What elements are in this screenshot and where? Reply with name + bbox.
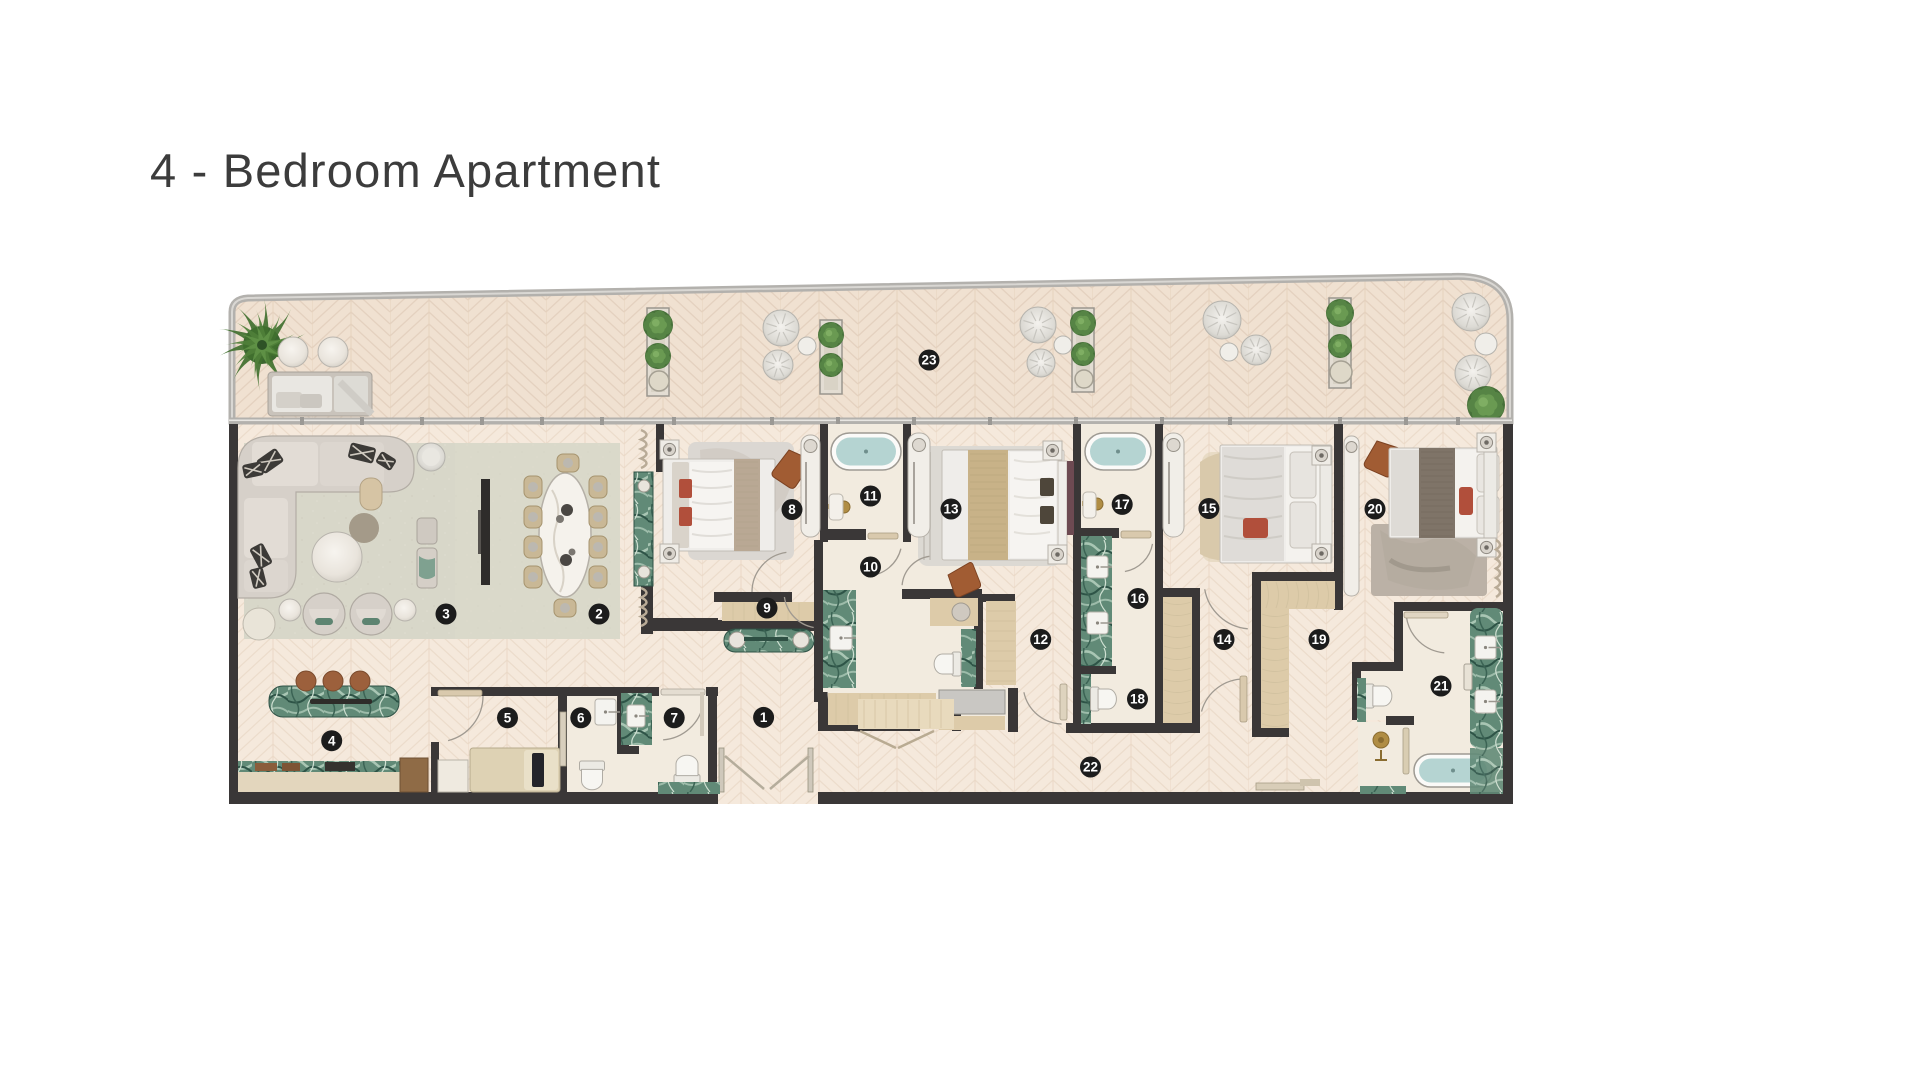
- svg-text:4: 4: [328, 733, 336, 748]
- svg-text:16: 16: [1130, 591, 1146, 606]
- svg-text:17: 17: [1115, 497, 1130, 512]
- svg-text:23: 23: [921, 353, 937, 368]
- svg-text:7: 7: [670, 710, 678, 725]
- svg-text:19: 19: [1311, 632, 1326, 647]
- svg-text:10: 10: [863, 560, 878, 575]
- svg-text:15: 15: [1201, 501, 1217, 516]
- svg-text:1: 1: [760, 710, 768, 725]
- svg-text:6: 6: [577, 710, 585, 725]
- svg-text:18: 18: [1130, 692, 1146, 707]
- svg-text:2: 2: [595, 607, 603, 622]
- svg-text:21: 21: [1433, 679, 1449, 694]
- svg-text:13: 13: [943, 502, 959, 517]
- svg-text:4 - Bedroom Apartment: 4 - Bedroom Apartment: [150, 144, 661, 197]
- svg-text:14: 14: [1216, 632, 1232, 647]
- svg-text:9: 9: [763, 601, 771, 616]
- svg-text:5: 5: [504, 710, 512, 725]
- svg-text:20: 20: [1367, 502, 1382, 517]
- svg-text:8: 8: [788, 502, 796, 517]
- svg-text:12: 12: [1033, 632, 1048, 647]
- svg-text:3: 3: [442, 607, 450, 622]
- svg-text:11: 11: [863, 489, 878, 504]
- svg-text:22: 22: [1083, 760, 1098, 775]
